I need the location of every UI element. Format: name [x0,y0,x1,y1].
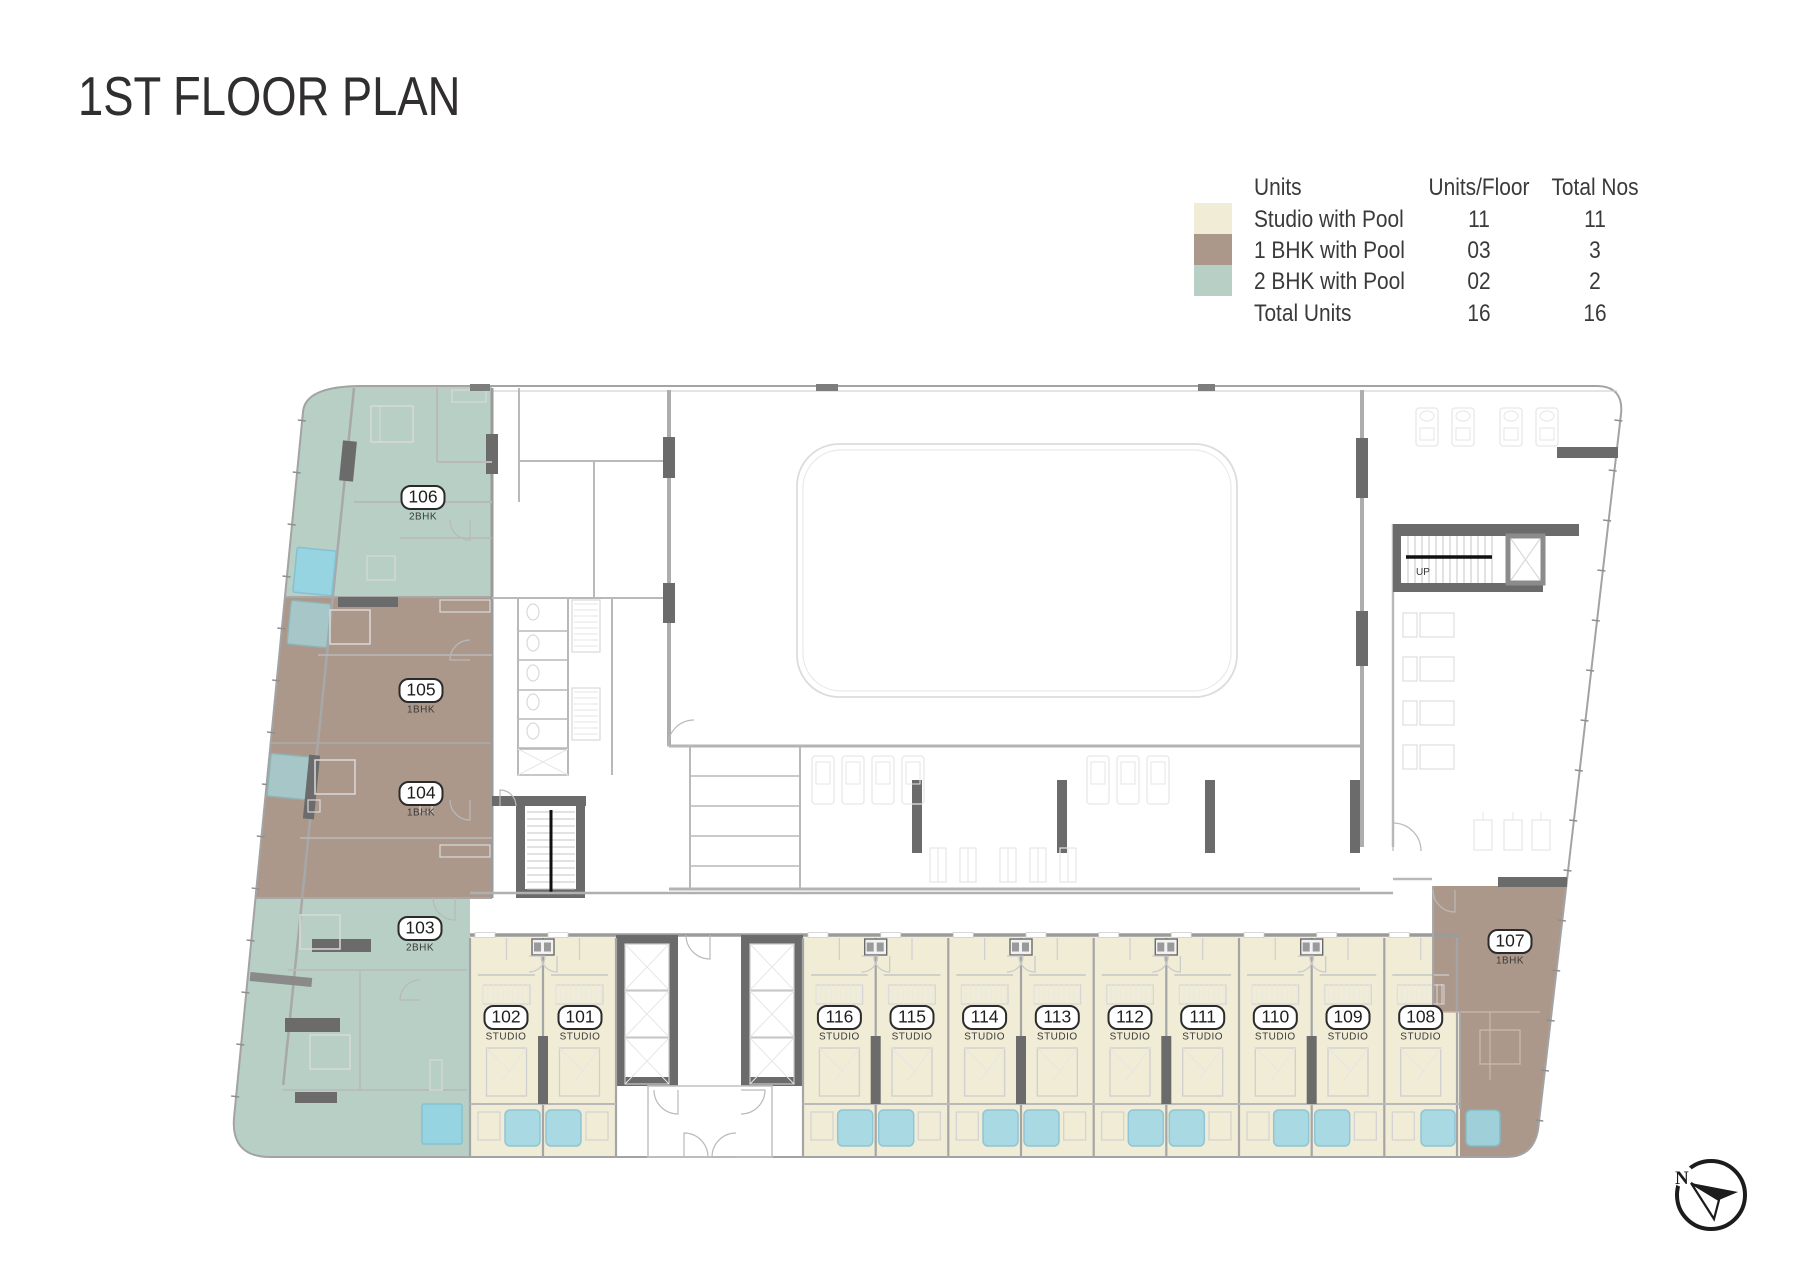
svg-text:STUDIO: STUDIO [892,1032,933,1043]
svg-text:2BHK: 2BHK [406,943,434,954]
svg-text:STUDIO: STUDIO [1328,1032,1369,1043]
svg-text:102: 102 [491,1007,520,1027]
svg-text:101: 101 [565,1007,594,1027]
svg-text:1BHK: 1BHK [1496,956,1524,967]
svg-text:104: 104 [406,783,435,803]
svg-text:111: 111 [1189,1007,1216,1027]
svg-text:114: 114 [971,1007,999,1027]
svg-text:110: 110 [1261,1007,1289,1027]
svg-text:N: N [1675,1168,1689,1189]
svg-text:STUDIO: STUDIO [964,1032,1005,1043]
svg-text:STUDIO: STUDIO [819,1032,860,1043]
svg-text:105: 105 [406,680,435,700]
svg-text:116: 116 [825,1007,853,1027]
svg-text:1BHK: 1BHK [407,808,435,819]
svg-text:STUDIO: STUDIO [1037,1032,1078,1043]
svg-text:103: 103 [405,918,434,938]
svg-text:108: 108 [1406,1007,1435,1027]
svg-text:STUDIO: STUDIO [486,1032,527,1043]
svg-text:112: 112 [1116,1007,1144,1027]
svg-text:106: 106 [408,487,437,507]
svg-text:115: 115 [898,1007,926,1027]
svg-text:STUDIO: STUDIO [1400,1032,1441,1043]
svg-text:STUDIO: STUDIO [560,1032,601,1043]
svg-text:2BHK: 2BHK [409,512,437,523]
svg-text:UP: UP [1416,567,1430,578]
svg-text:STUDIO: STUDIO [1255,1032,1296,1043]
svg-text:1BHK: 1BHK [407,705,435,716]
svg-text:STUDIO: STUDIO [1182,1032,1223,1043]
svg-text:109: 109 [1333,1007,1362,1027]
svg-text:107: 107 [1495,931,1524,951]
svg-text:STUDIO: STUDIO [1110,1032,1151,1043]
svg-text:113: 113 [1043,1007,1071,1027]
